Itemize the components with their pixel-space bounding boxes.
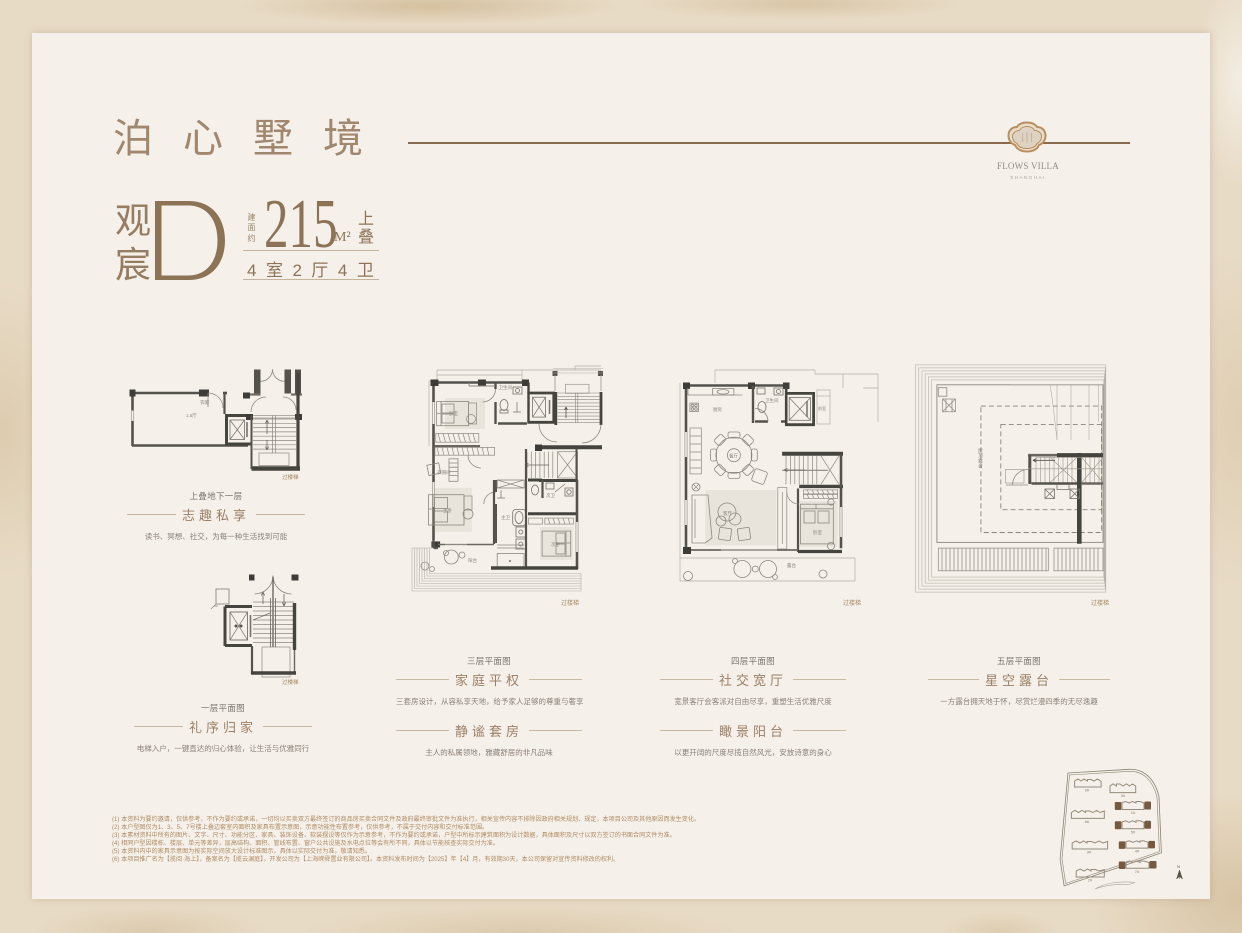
- svg-text:过楼梯: 过楼梯: [561, 599, 579, 607]
- svg-text:餐厅: 餐厅: [729, 453, 738, 460]
- svg-text:9#: 9#: [1087, 850, 1092, 855]
- svg-text:屋顶露台: 屋顶露台: [978, 448, 983, 470]
- svg-text:7#: 7#: [1135, 869, 1140, 874]
- svg-text:N: N: [1177, 864, 1180, 869]
- svg-text:过楼梯: 过楼梯: [282, 473, 299, 481]
- svg-text:卧室: 卧室: [449, 410, 458, 417]
- svg-text:衣帽: 衣帽: [200, 399, 209, 406]
- svg-text:卫生间: 卫生间: [765, 397, 779, 404]
- svg-text:阳台: 阳台: [468, 557, 477, 564]
- svg-text:主卧: 主卧: [443, 507, 452, 514]
- svg-text:6#: 6#: [1085, 788, 1090, 793]
- svg-text:次卧: 次卧: [551, 541, 560, 548]
- svg-text:5#: 5#: [1131, 830, 1136, 835]
- svg-text:过楼梯: 过楼梯: [282, 678, 299, 686]
- svg-text:露台: 露台: [787, 562, 796, 569]
- svg-text:4#: 4#: [1135, 849, 1140, 854]
- svg-text:过楼梯: 过楼梯: [843, 599, 861, 607]
- svg-text:主卫: 主卫: [501, 514, 510, 520]
- svg-text:1#: 1#: [1131, 810, 1136, 815]
- svg-text:客厅: 客厅: [723, 510, 732, 517]
- svg-text:卫生间: 卫生间: [499, 384, 513, 391]
- svg-text:1.5厅: 1.5厅: [186, 413, 197, 418]
- svg-text:过楼梯: 过楼梯: [1091, 599, 1109, 607]
- svg-text:衣帽间: 衣帽间: [437, 469, 451, 476]
- svg-text:8#: 8#: [1085, 819, 1090, 824]
- svg-text:次卫: 次卫: [546, 492, 555, 499]
- svg-text:卧室: 卧室: [813, 529, 822, 536]
- svg-text:厨房: 厨房: [713, 406, 722, 413]
- svg-text:3#: 3#: [1121, 793, 1126, 798]
- svg-text:前室: 前室: [818, 405, 826, 411]
